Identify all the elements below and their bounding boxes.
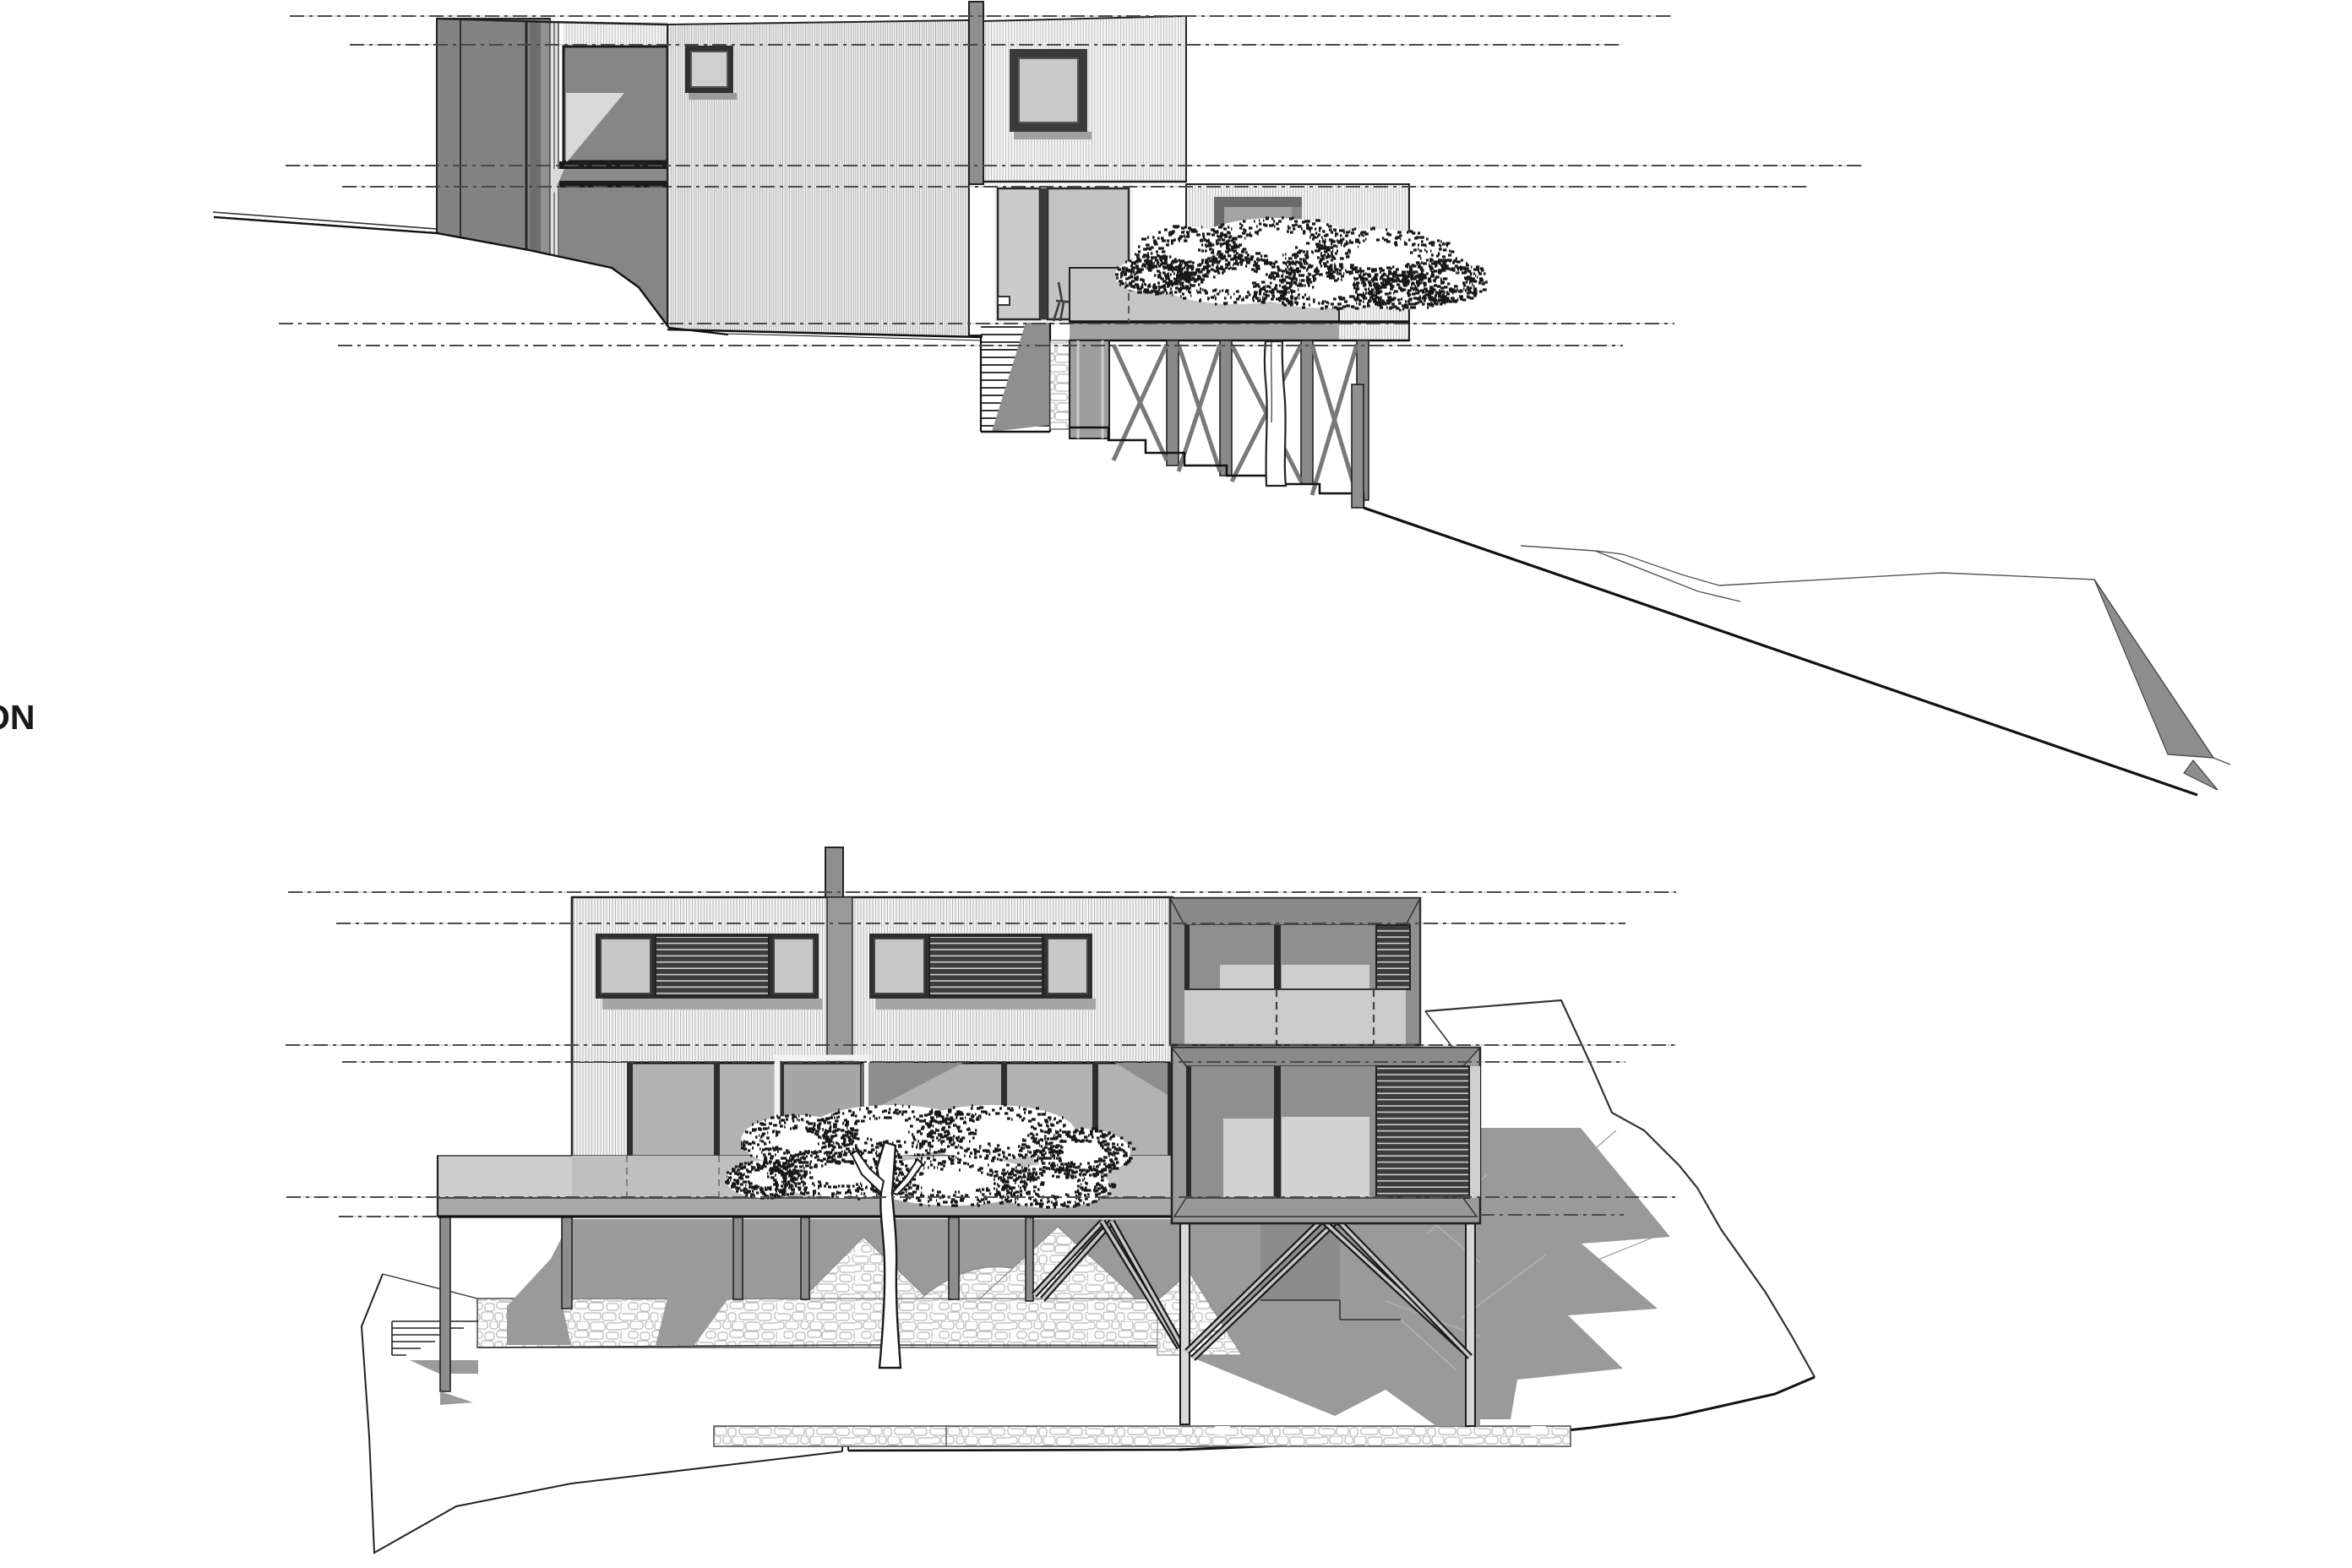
svg-text:ON: ON xyxy=(0,698,35,737)
